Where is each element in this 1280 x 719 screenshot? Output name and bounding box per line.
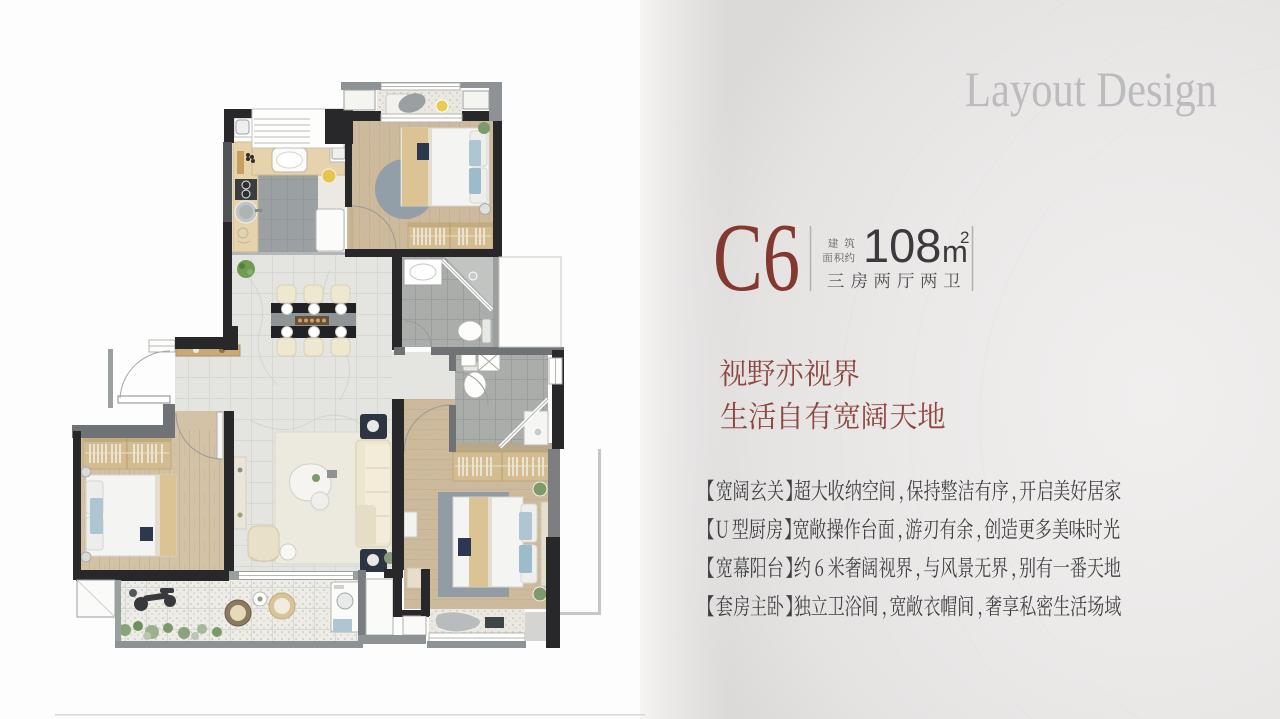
svg-text:108: 108 bbox=[863, 219, 941, 272]
svg-text:Layout Design: Layout Design bbox=[965, 61, 1217, 117]
svg-text:C6: C6 bbox=[713, 204, 800, 312]
svg-text:2: 2 bbox=[960, 228, 969, 247]
